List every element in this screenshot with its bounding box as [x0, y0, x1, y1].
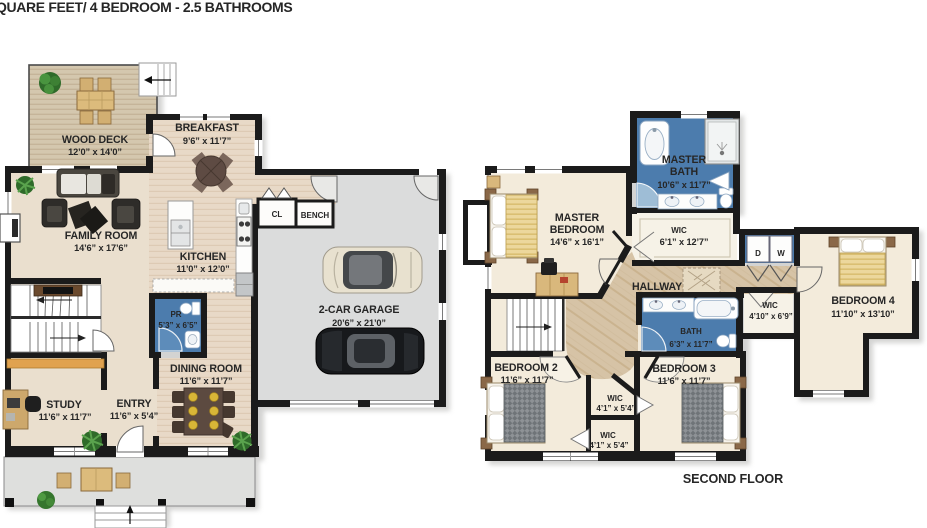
svg-text:BATH: BATH — [680, 327, 702, 336]
svg-text:BATH: BATH — [670, 166, 698, 178]
svg-text:12’0” x 14’0”: 12’0” x 14’0” — [68, 147, 122, 157]
svg-text:6’1” x 12’7”: 6’1” x 12’7” — [660, 237, 709, 247]
svg-text:BENCH: BENCH — [301, 211, 330, 220]
svg-text:6’3” x 11’7”: 6’3” x 11’7” — [669, 340, 712, 349]
svg-text:MASTER: MASTER — [555, 212, 600, 224]
svg-text:14’6” x 16’1”: 14’6” x 16’1” — [550, 237, 604, 247]
svg-text:11’6” x 11’7”: 11’6” x 11’7” — [180, 376, 233, 386]
svg-text:SQUARE FEET/ 4 BEDROOM - 2.5 B: SQUARE FEET/ 4 BEDROOM - 2.5 BATHROOMS — [0, 0, 292, 15]
svg-text:WIC: WIC — [671, 226, 687, 235]
svg-text:2-CAR GARAGE: 2-CAR GARAGE — [319, 304, 400, 316]
svg-text:11’10” x 13’10”: 11’10” x 13’10” — [831, 309, 894, 319]
svg-text:10’6” x 11’7”: 10’6” x 11’7” — [657, 180, 710, 190]
svg-text:BREAKFAST: BREAKFAST — [175, 122, 239, 134]
svg-text:FAMILY ROOM: FAMILY ROOM — [65, 230, 138, 242]
svg-text:5’3” x 6’5”: 5’3” x 6’5” — [158, 321, 197, 330]
svg-text:PR: PR — [170, 310, 181, 319]
svg-text:WIC: WIC — [607, 394, 623, 403]
svg-text:ENTRY: ENTRY — [116, 398, 151, 410]
svg-text:11’6” x 5’4”: 11’6” x 5’4” — [110, 411, 158, 421]
svg-text:11’6” x 11’7”: 11’6” x 11’7” — [658, 376, 711, 386]
svg-text:BEDROOM 3: BEDROOM 3 — [652, 363, 715, 375]
svg-text:D: D — [755, 249, 761, 258]
svg-text:W: W — [777, 249, 785, 258]
svg-text:WIC: WIC — [600, 431, 616, 440]
svg-text:BEDROOM 4: BEDROOM 4 — [831, 295, 894, 307]
svg-text:20’6” x 21’0”: 20’6” x 21’0” — [332, 318, 386, 328]
svg-text:BEDROOM 2: BEDROOM 2 — [494, 362, 557, 374]
svg-text:BEDROOM: BEDROOM — [550, 224, 605, 236]
svg-text:MASTER: MASTER — [662, 154, 707, 166]
svg-text:11’6” x 11’7”: 11’6” x 11’7” — [501, 375, 554, 385]
svg-text:4’10” x 6’9”: 4’10” x 6’9” — [749, 312, 793, 321]
svg-text:SECOND FLOOR: SECOND FLOOR — [683, 472, 783, 486]
svg-text:DINING ROOM: DINING ROOM — [170, 363, 242, 375]
svg-text:14’6” x 17’6”: 14’6” x 17’6” — [74, 243, 128, 253]
svg-text:4’1” x 5’4”: 4’1” x 5’4” — [596, 404, 635, 413]
svg-text:4’1” x 5’4”: 4’1” x 5’4” — [589, 441, 628, 450]
svg-text:WIC: WIC — [762, 301, 778, 310]
svg-text:11’6” x 11’7”: 11’6” x 11’7” — [39, 412, 92, 422]
svg-text:KITCHEN: KITCHEN — [180, 251, 226, 263]
svg-text:CL: CL — [272, 210, 283, 219]
svg-text:11’0” x 12’0”: 11’0” x 12’0” — [176, 264, 229, 274]
svg-text:STUDY: STUDY — [46, 399, 81, 411]
svg-text:HALLWAY: HALLWAY — [632, 281, 682, 293]
svg-text:9’6” x 11’7”: 9’6” x 11’7” — [183, 136, 231, 146]
svg-text:WOOD DECK: WOOD DECK — [62, 134, 129, 146]
